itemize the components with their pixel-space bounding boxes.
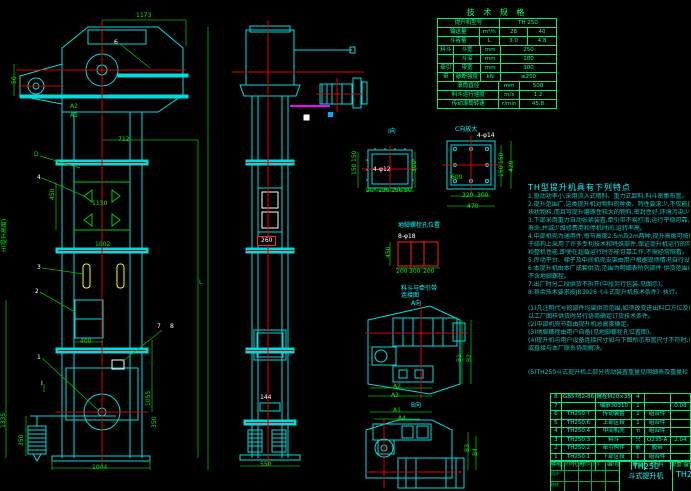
bom-cell: 上部区段	[595, 420, 631, 428]
bom-cell	[670, 445, 690, 453]
bom-cell	[644, 403, 670, 411]
note-line: (1)凡注明代号的部件均属供货范围,如须改变进出料口方位及尺寸请在订货时注明,	[528, 305, 690, 313]
note-line: 5.传动平台、梯子及中间机壳支架由用户根据现场情况自行设计制造。	[528, 257, 690, 265]
dim-label: C向放大	[455, 127, 477, 133]
notes-block: TH型提升机具有下列特点 1.驱动功率小,采用流入式喂料、重力式卸料,料斗密集布…	[528, 183, 690, 385]
bom-cell: 传动装置	[595, 411, 631, 419]
revision-cell: 设计	[551, 471, 564, 480]
dim-label: 420	[509, 161, 515, 172]
spec-cell: 破断强度	[453, 73, 479, 81]
dim-label: 550	[260, 462, 271, 468]
bom-cell: 螺栓M20×35	[595, 394, 631, 402]
drawing-code: TH250	[673, 461, 691, 491]
revision-cell	[591, 482, 605, 491]
note-line: (4)提升机与用户设备连接尺寸如与下图所示布置尺寸不符时,请用户自行调整,	[528, 337, 690, 345]
drawing-model: TH250	[620, 461, 672, 472]
spec-row: 传动滚筒转速r/min45.8	[438, 99, 556, 108]
dim-label: 470	[467, 204, 478, 210]
spec-row: 斗深mm180	[438, 54, 556, 63]
spec-cell: 带宽	[453, 64, 479, 72]
spec-cell: m³/h	[479, 28, 499, 36]
dim-label: 1	[37, 355, 41, 361]
bom-cell	[561, 403, 596, 411]
bom-cell: 2	[551, 445, 561, 453]
spec-row: 带破断强度kN≥250	[438, 72, 556, 81]
spec-row: 牵引带宽mm300	[438, 63, 556, 72]
note-line: 1.驱动功率小,采用流入式喂料、重力式卸料,料斗密集布置。	[528, 193, 690, 201]
dim-label: 150	[352, 164, 358, 175]
spec-cell: 3.0	[499, 37, 527, 45]
note-line: 和整机性能,即使在超载运行时亦能可靠工作,不需经常照看。	[528, 249, 690, 257]
bom-cell	[670, 428, 690, 436]
bom-cell: 组合件	[644, 428, 670, 436]
spec-cell: 带	[438, 73, 453, 81]
revision-cell: 日期	[605, 461, 619, 470]
dim-label: 400	[80, 339, 91, 345]
title-block-revision-grid: 标记处数更改文件号签字日期设计校核	[551, 461, 620, 491]
revision-cell	[578, 482, 592, 491]
notes-title: TH型提升机具有下列特点	[528, 183, 690, 193]
dim-label: A1	[70, 113, 78, 119]
bom-cell: 组合件	[644, 411, 670, 419]
spec-cell: 45.8	[519, 100, 556, 108]
title-block: 标记处数更改文件号签字日期设计校核 TH250 斗式提升机 TH250	[550, 460, 691, 491]
dim-label: 300	[477, 193, 488, 199]
spec-row: 料斗斗宽mm250	[438, 45, 556, 54]
revision-cell	[591, 471, 605, 480]
dim-label: D	[34, 152, 39, 158]
note-line	[528, 377, 690, 385]
dim-label: B3	[465, 444, 471, 452]
dim-label: A向	[411, 301, 421, 307]
note-line	[528, 297, 690, 305]
dim-label: 150	[499, 166, 505, 177]
spec-row: 提升机型号TH 250	[438, 19, 556, 27]
dim-label: 1130	[92, 201, 107, 207]
revision-cell	[605, 482, 619, 491]
note-line: 8.其余技术要求按JB3926《斗式提升机技术条件》执行。	[528, 289, 690, 297]
dim-label: 350	[152, 417, 158, 428]
spec-cell: mm	[498, 82, 519, 90]
dim-label: 350	[19, 435, 25, 446]
dim-label: 90	[366, 188, 374, 194]
dim-label: A2	[393, 384, 401, 390]
dim-label: H(提升高度)	[2, 219, 8, 252]
dim-label: 8	[170, 324, 174, 330]
revision-row: 校核	[551, 481, 619, 491]
spec-cell: mm	[480, 64, 500, 72]
note-line: 于结构上采用了许多专利技术和特殊部件,保证提升机运行的可靠性、工作寿命	[528, 241, 690, 249]
bom-table: 8GB5782-86螺栓M20×3547轴承3031010.086TH250.7…	[550, 393, 691, 470]
dim-label: 1335	[1, 413, 7, 428]
revision-cell	[605, 471, 619, 480]
dim-label: 450	[50, 189, 56, 200]
spec-table-grid: 提升机型号TH 250输送量m³/h2840斗容量L3.04.8料斗斗宽mm25…	[437, 18, 557, 109]
dim-label: 50	[12, 76, 18, 84]
bom-cell: 胶带	[644, 445, 670, 453]
note-line: 不含地脚螺栓。	[528, 273, 690, 281]
spec-row: 输送量m³/h2840	[438, 27, 556, 36]
dim-label: 300	[409, 269, 420, 275]
bom-cell: 7	[551, 403, 561, 411]
bom-cell: TH250.3	[561, 437, 596, 445]
dim-label: 712	[118, 137, 129, 143]
bom-row: 3TH250.3料斗只Q235-A2.04	[550, 436, 691, 445]
dim-label: B向	[411, 403, 421, 409]
note-line: 3.下部采用重力自动张紧装置,牵引带不易打滑,运行平稳可靠,大大延长了使用	[528, 217, 690, 225]
dim-label: 3	[37, 265, 41, 271]
spec-cell: 500	[519, 82, 556, 90]
notes-lines: 1.驱动功率小,采用流入式喂料、重力式卸料,料斗密集布置。2.提升范围广,这类提…	[528, 193, 690, 385]
spec-cell: L	[479, 37, 499, 45]
spec-cell: 牵引	[438, 64, 453, 72]
bom-cell: 节	[631, 428, 644, 436]
bom-cell: 只	[631, 437, 644, 445]
spec-cell: TH 250	[499, 19, 556, 27]
bom-row: 6TH250.7传动装置1组合件	[550, 410, 691, 419]
dim-label: 7	[157, 324, 161, 330]
dim-label: 4-φ12	[373, 167, 391, 173]
cad-viewport[interactable]: 6117350A2A1712D44501130100232H(提升高度)4007…	[0, 0, 691, 491]
spec-cell: 斗深	[453, 55, 479, 63]
bom-row: 2TH250.2牵引构件条胶带	[550, 444, 691, 453]
revision-row: 设计	[551, 470, 619, 480]
spec-cell	[438, 55, 453, 63]
dim-label: 6	[114, 40, 118, 46]
dim-label: 260	[257, 236, 276, 246]
bom-cell	[670, 394, 690, 402]
bom-cell	[670, 411, 690, 419]
note-line: 以工厂图样供货时另行协商确定订货技术条件。	[528, 313, 690, 321]
revision-cell: 处数	[564, 461, 578, 470]
spec-cell: 滚筒直径	[438, 82, 498, 90]
dim-label: 2	[35, 289, 39, 295]
bom-cell: 条	[631, 445, 644, 453]
revision-cell	[578, 471, 592, 480]
bom-cell: TH250.2	[561, 445, 596, 453]
dim-label: I向	[388, 129, 396, 135]
bom-cell: 组合件	[644, 420, 670, 428]
bom-cell: 5	[551, 420, 561, 428]
dim-label: 1002	[95, 242, 110, 248]
dim-label: 600	[451, 175, 462, 181]
note-line: (5)TH250斗式提升机上部分传动装置重量见明细表及重量栏 A=40。	[528, 369, 690, 377]
dim-label: 4-φ14	[477, 133, 495, 139]
bom-cell: 中间机壳	[595, 428, 631, 436]
bom-cell: 8	[551, 394, 561, 402]
spec-cell: 4.8	[527, 37, 556, 45]
bom-cell: 3	[551, 437, 561, 445]
note-line: 6.本提升机由本厂成套供货,范围为明细表所列部件 供货范围以订货合同为准,	[528, 265, 690, 273]
spec-cell: 提升机型号	[438, 19, 499, 27]
dim-label: 连接图	[401, 293, 419, 299]
dim-label: A3	[391, 393, 399, 399]
spec-cell: m/s	[498, 91, 519, 99]
spec-row: 滚筒直径mm500	[438, 81, 556, 90]
dim-label: A2	[70, 104, 78, 110]
revision-cell: 签字	[591, 461, 605, 470]
bom-cell: TH250.7	[561, 411, 596, 419]
bom-row: 7轴承3031010.08	[550, 402, 691, 411]
dim-label: 320	[462, 193, 473, 199]
bom-cell: Q235-A	[644, 437, 670, 445]
drawing-name: 斗式提升机	[620, 472, 672, 481]
revision-cell: 更改文件号	[578, 461, 592, 470]
dim-label: 地脚螺栓孔位置	[398, 223, 440, 229]
spec-cell: 料斗	[438, 46, 453, 54]
revision-cell: 标记	[551, 461, 564, 470]
title-block-name: TH250 斗式提升机	[620, 461, 673, 491]
dim-label: 8-φ18	[398, 234, 416, 240]
spec-cell: 输送量	[438, 28, 479, 36]
dim-label: 450	[386, 247, 392, 258]
dim-label: 1044	[92, 465, 107, 471]
dim-label: 4	[37, 175, 41, 181]
spec-cell: ≥250	[500, 73, 556, 81]
dim-label: A4	[398, 416, 406, 422]
note-line	[528, 353, 690, 361]
note-line: 块状物料,而且可提升磨琢性较大的物料,密封性好,环境污染少。	[528, 209, 690, 217]
note-line: 4.中部机壳为通用件,每节高度2.5m及2m两种,提升高度可按用户需要选取,由	[528, 233, 690, 241]
bom-cell: 轴承30310	[595, 403, 631, 411]
spec-cell: kN	[480, 73, 500, 81]
spec-table: 技 术 规 格 提升机型号TH 250输送量m³/h2840斗容量L3.04.8…	[437, 8, 557, 109]
spec-table-title: 技 术 规 格	[437, 8, 557, 18]
spec-cell: 1.2	[519, 91, 556, 99]
bom-cell: 1	[631, 403, 644, 411]
bom-cell: 4	[631, 394, 644, 402]
dim-label: 90	[404, 188, 412, 194]
bom-cell	[670, 420, 690, 428]
spec-cell: 180	[500, 55, 556, 63]
dim-label: 200	[396, 269, 407, 275]
note-line: (3)地脚螺栓由用户自备(见地脚螺栓孔位置图)。	[528, 329, 690, 337]
note-line: 寿命,并减少维修费用和停机时间,运转率高。	[528, 225, 690, 233]
revision-cell	[564, 471, 578, 480]
spec-cell: 传动滚筒转速	[438, 100, 498, 108]
bom-cell: 6	[551, 411, 561, 419]
bom-cell: 2.04	[670, 437, 690, 445]
bom-cell: 料斗	[595, 437, 631, 445]
note-line: 或直接与本厂联系协商解决。	[528, 345, 690, 353]
dim-label: 150	[499, 153, 505, 164]
revision-row: 标记处数更改文件号签字日期	[551, 461, 619, 470]
spec-cell: 斗宽	[453, 46, 479, 54]
revision-cell	[564, 482, 578, 491]
bom-cell	[644, 394, 670, 402]
spec-cell: mm	[480, 55, 500, 63]
spec-cell: 250	[500, 46, 556, 54]
note-line: 7.出厂时分二段供货不拆开(中段另行包装,见图示)。	[528, 281, 690, 289]
dim-label: B2	[467, 354, 473, 362]
dim-label: 1173	[136, 13, 151, 19]
spec-cell: r/min	[498, 100, 519, 108]
dim-label: L	[199, 280, 202, 286]
spec-cell: 40	[527, 28, 556, 36]
dim-label: 156	[378, 188, 389, 194]
spec-row: 料斗运行速度m/s1.2	[438, 90, 556, 99]
dim-label: I	[41, 381, 43, 387]
spec-cell: 28	[499, 28, 527, 36]
dim-label: 156	[391, 188, 402, 194]
spec-cell: 料斗运行速度	[438, 91, 498, 99]
spec-cell: 斗容量	[438, 37, 479, 45]
note-line: (2)中部机壳节数由提升机总高度确定。	[528, 321, 690, 329]
dim-label: 150	[352, 151, 358, 162]
dim-label: 1055	[146, 391, 152, 406]
revision-cell: 校核	[551, 482, 564, 491]
dim-label: B4	[473, 448, 479, 456]
note-line: 2.提升范围广,这类提升机对物料的种类、特性要求少,不仅能提升一般粉状、小	[528, 201, 690, 209]
dim-label: 300	[412, 161, 418, 172]
note-line	[528, 361, 690, 369]
dim-label: B1	[457, 354, 463, 362]
spec-cell: 300	[500, 64, 556, 72]
dim-label: A1	[393, 408, 401, 414]
bom-row: 5TH250.6上部区段1组合件	[550, 419, 691, 428]
bom-cell: TH250.6	[561, 420, 596, 428]
bom-cell: 牵引构件	[595, 445, 631, 453]
bom-row: 4TH250.4中间机壳节组合件	[550, 427, 691, 436]
bom-cell: 1	[631, 411, 644, 419]
bom-cell: 1	[631, 420, 644, 428]
bom-cell: 4	[551, 428, 561, 436]
bom-cell: GB5782-86	[561, 394, 596, 402]
spec-cell: mm	[480, 46, 500, 54]
dim-label: 200	[423, 269, 434, 275]
bom-row: 8GB5782-86螺栓M20×354	[550, 393, 691, 402]
bom-cell: 0.08	[670, 403, 690, 411]
dim-label: 144	[260, 395, 271, 401]
bom-cell: TH250.4	[561, 428, 596, 436]
spec-row: 斗容量L3.04.8	[438, 36, 556, 45]
